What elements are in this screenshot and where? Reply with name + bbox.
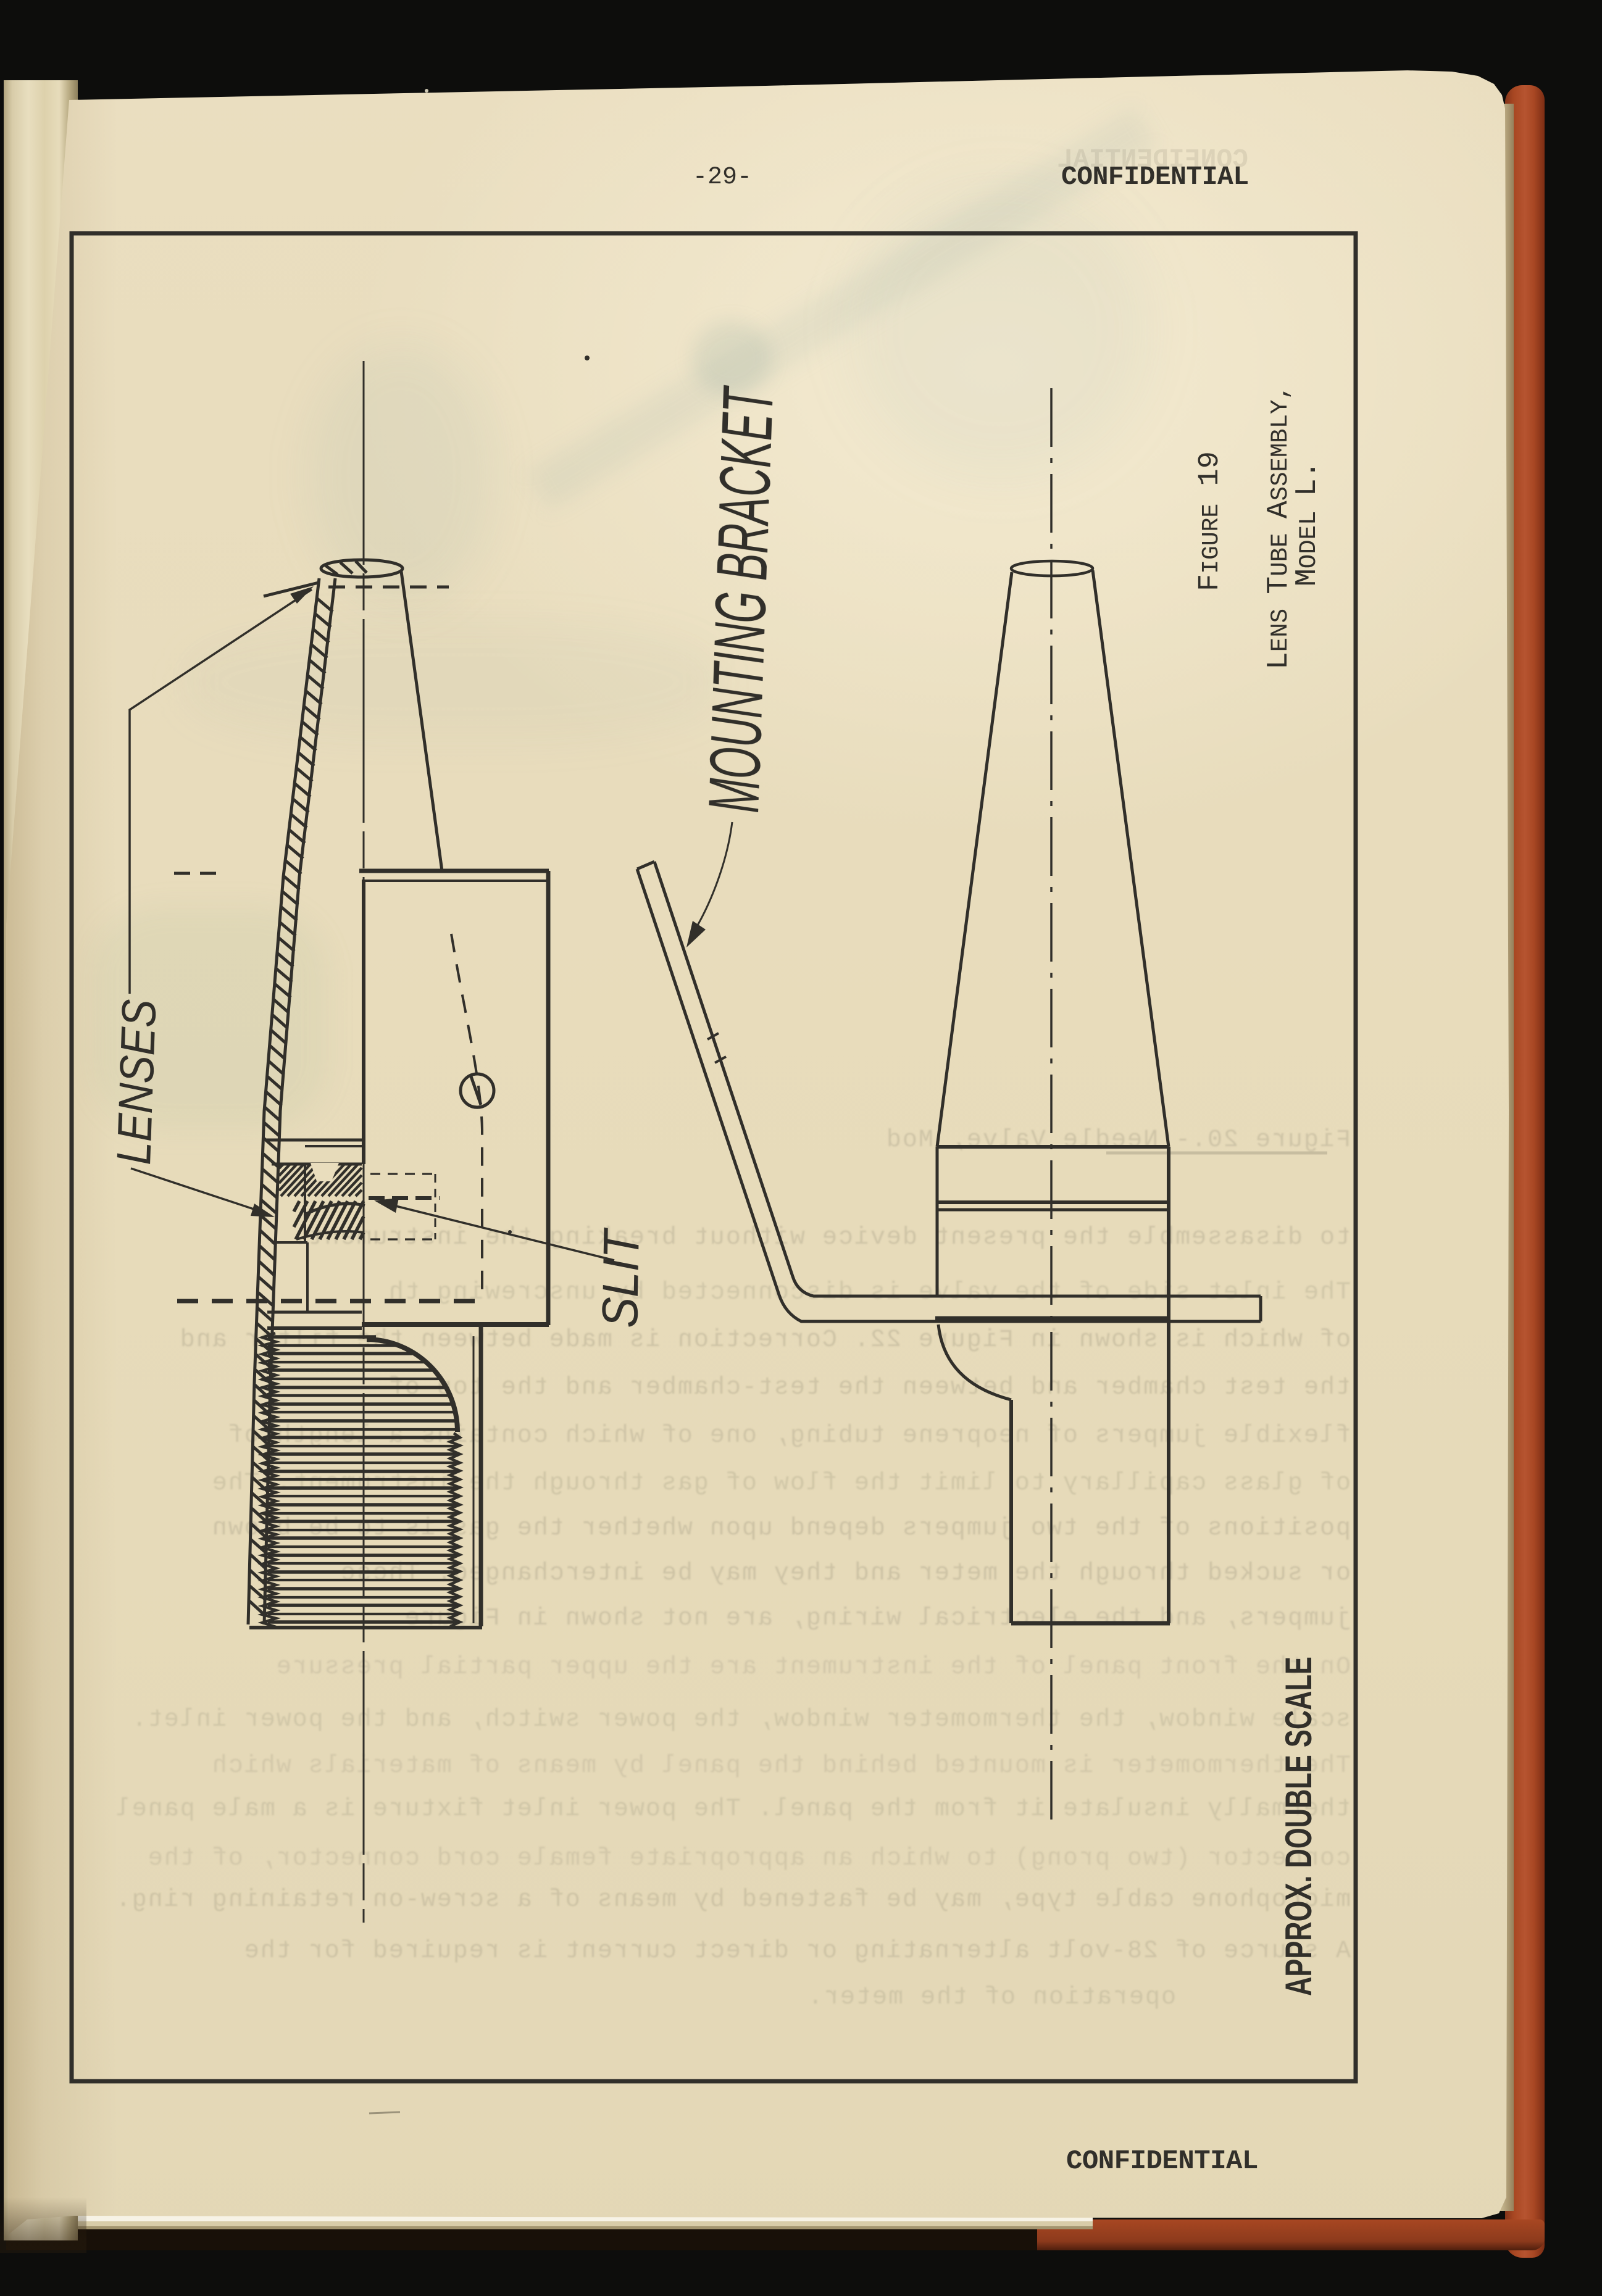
svg-text:CONFIDENTIAL: CONFIDENTIAL — [1066, 2146, 1258, 2177]
svg-text:to disassemble the present dev: to disassemble the present device withou… — [291, 1224, 1351, 1252]
svg-text:LENSES: LENSES — [106, 999, 166, 1166]
svg-text:MODEL L.: MODEL L. — [1291, 461, 1324, 586]
svg-text:of which is shown in Figure 22: of which is shown in Figure 22. Correcti… — [179, 1326, 1351, 1354]
svg-text:A source of 28-volt alternatin: A source of 28-volt alternating or direc… — [243, 1937, 1351, 1965]
svg-text:APPROX. DOUBLE SCALE: APPROX. DOUBLE SCALE — [1278, 1657, 1319, 1996]
svg-text:operation of the meter.: operation of the meter. — [807, 1984, 1176, 2011]
svg-text:scale window, the thermometer: scale window, the thermometer window, th… — [131, 1706, 1351, 1734]
svg-text:thermally insulate it from the: thermally insulate it from the panel. Th… — [115, 1795, 1351, 1823]
svg-text:FIGURE 19: FIGURE 19 — [1194, 451, 1227, 591]
svg-text:SLIT: SLIT — [592, 1227, 650, 1328]
svg-text:MOUNTING BRACKET: MOUNTING BRACKET — [693, 385, 788, 814]
svg-text:The inlet side of the valve is: The inlet side of the valve is disconnec… — [388, 1279, 1351, 1307]
svg-text:of glass capillary to limit th: of glass capillary to limit the flow of … — [211, 1470, 1351, 1497]
svg-text:On the front panel of the inst: On the front panel of the instrument are… — [275, 1653, 1351, 1681]
svg-text:connector (two prong) to which: connector (two prong) to which an approp… — [147, 1845, 1351, 1873]
svg-text:the test chamber and between t: the test chamber and between the test-ch… — [388, 1374, 1351, 1402]
svg-text:The thermometer is mounted beh: The thermometer is mounted behind the pa… — [211, 1752, 1351, 1780]
svg-text:CONFIDENTIAL: CONFIDENTIAL — [1061, 162, 1249, 192]
svg-text:-29-: -29- — [693, 164, 752, 191]
svg-text:microphone cable type, may be: microphone cable type, may be fastened b… — [115, 1886, 1351, 1914]
svg-text:jumpers, and the electrical wi: jumpers, and the electrical wiring, are … — [404, 1605, 1351, 1633]
svg-text:Figure 20.- Needle Valve, Mod: Figure 20.- Needle Valve, Mod — [885, 1126, 1351, 1154]
svg-text:LENS TUBE ASSEMBLY,: LENS TUBE ASSEMBLY, — [1262, 385, 1296, 670]
svg-text:or sucked through the meter an: or sucked through the meter and they may… — [340, 1560, 1351, 1587]
